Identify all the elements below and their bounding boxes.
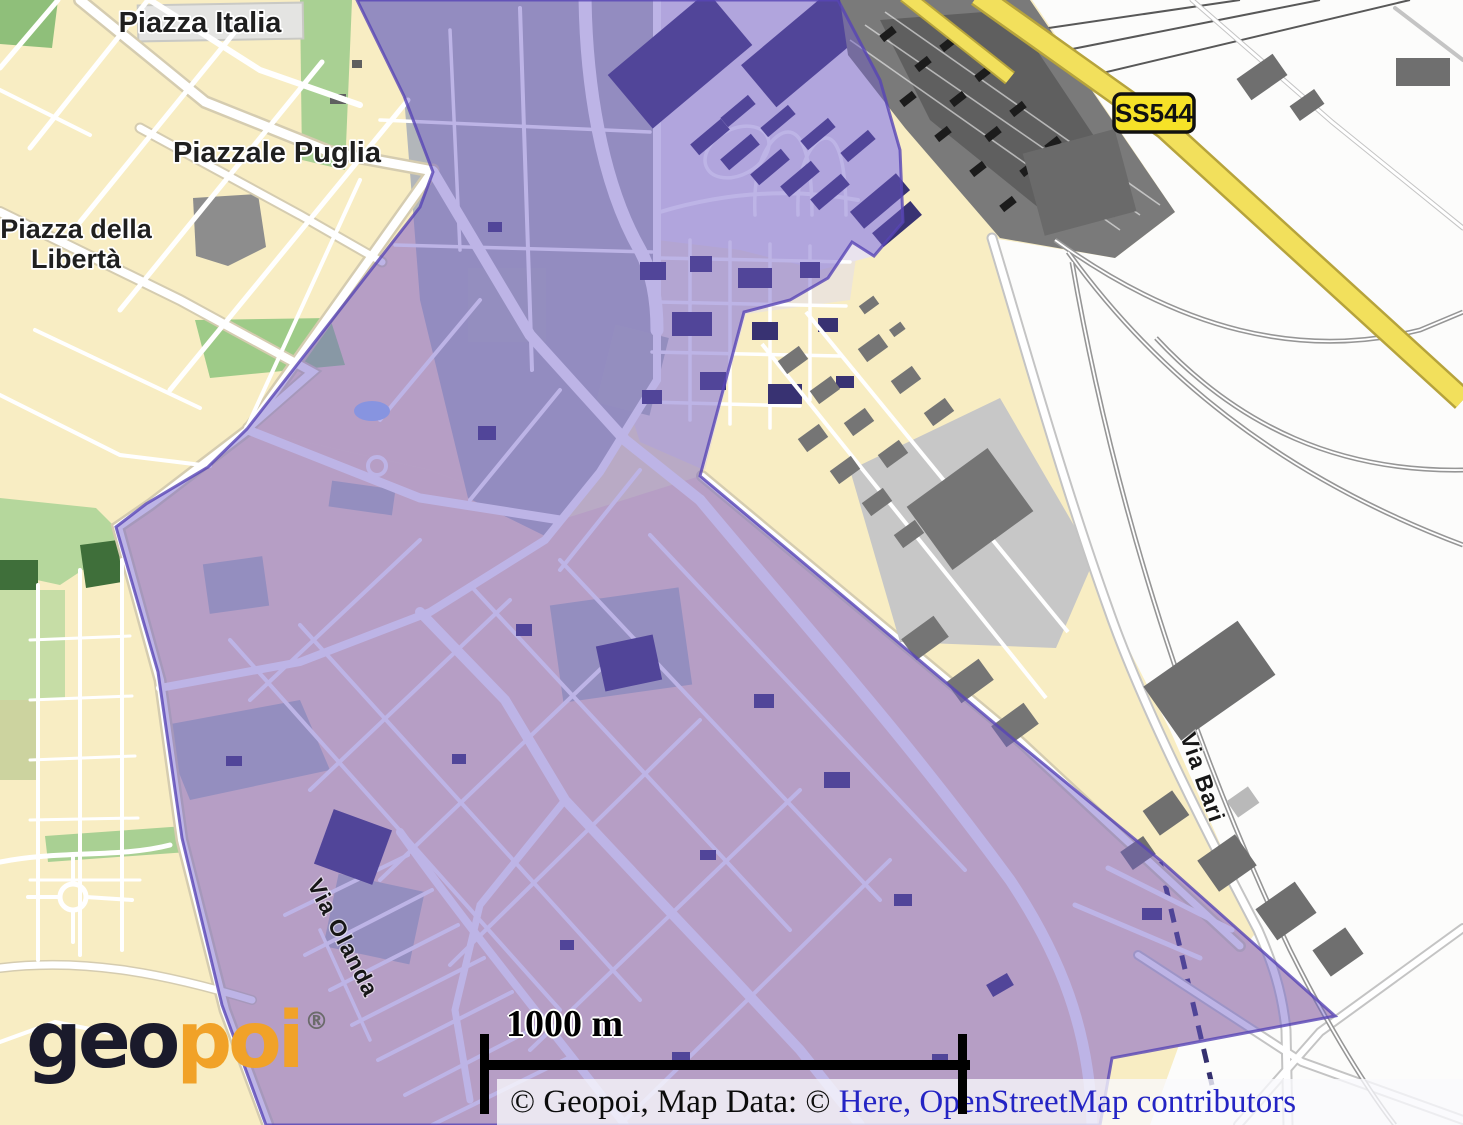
logo-text-dark: geo <box>26 996 176 1086</box>
label-piazza-italia: Piazza Italia <box>119 7 283 39</box>
geopoi-logo: geopoi® <box>26 1002 329 1080</box>
road-shield-label: SS544 <box>1115 98 1194 128</box>
attribution-link-here[interactable]: Here <box>839 1084 903 1120</box>
scale-bar-label: 1000 m <box>506 1002 623 1046</box>
map-viewport[interactable]: Piazza Italia Piazzale Puglia Piazza del… <box>0 0 1463 1125</box>
attribution-bar: © Geopoi, Map Data: © Here, OpenStreetMa… <box>497 1079 1463 1125</box>
map-canvas[interactable]: Piazza Italia Piazzale Puglia Piazza del… <box>0 0 1463 1125</box>
label-piazza-della-liberta-line2: Libertà <box>31 244 122 274</box>
scale-bar-right-tick <box>958 1034 967 1114</box>
label-piazza-della-liberta-line1: Piazza della <box>0 214 153 244</box>
attribution-prefix: © Geopoi, Map Data: © <box>510 1084 839 1120</box>
registered-trademark-icon: ® <box>305 1007 329 1035</box>
attribution-separator: , <box>903 1084 920 1120</box>
scale-bar-line <box>484 1060 970 1070</box>
road-shield-ss544: SS544 <box>1114 94 1194 132</box>
attribution-suffix: contributors <box>1128 1084 1296 1120</box>
logo-text-orange: poi <box>176 996 300 1086</box>
scale-bar-left-tick <box>480 1034 489 1114</box>
label-piazzale-puglia: Piazzale Puglia <box>173 137 382 169</box>
attribution-link-openstreetmap[interactable]: OpenStreetMap <box>919 1084 1128 1120</box>
